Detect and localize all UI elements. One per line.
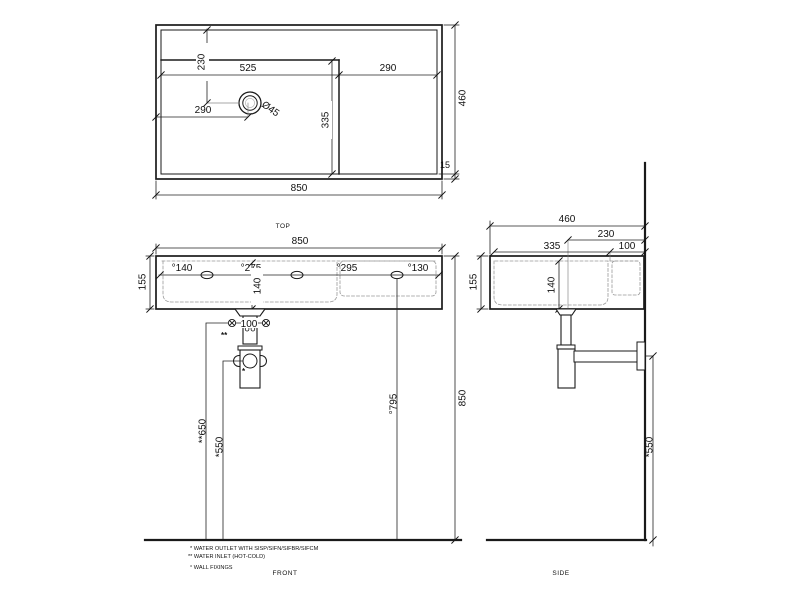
dim-230-lines [207,29,239,103]
dim-tap-hole-from-left: 290 [195,105,212,116]
side-view-label: SIDE [552,570,569,577]
inlet-mark: ** [221,331,228,340]
trap-cap [238,346,262,350]
dim-bowl-depth: 335 [321,111,332,128]
dim-side-overall-depth: 460 [559,214,576,225]
dim-rim-offset: 15 [440,160,450,170]
dim-drain-to-wall: 230 [598,229,615,240]
dim-overall-depth: 460 [458,89,469,106]
dim-front-height: 155 [138,273,149,290]
side-hidden-edges [494,261,640,305]
hidden-edges [162,261,436,302]
dim-front-overall-width: 850 [292,236,309,247]
dim-side-bowl-inner-height: 140 [547,276,558,293]
dim-overall-width: 850 [291,183,308,194]
dim-fixing-height: °795 [389,393,400,414]
dim-fixing-1: °140 [172,263,193,274]
dim-side-height: 155 [469,273,480,290]
dim-side-bowl-depth: 335 [544,241,561,252]
side-drain-and-trap [556,309,645,388]
basin-front-outline [156,256,442,309]
note-wall-fixings: ° WALL FIXINGS [190,565,233,571]
note-water-inlet: ** WATER INLET (HOT-COLD) [188,554,265,560]
dim-front-bowl-inner-height: 140 [253,277,264,294]
dim-outlet-height: *550 [215,436,226,457]
drawing-notes: * WATER OUTLET WITH SISP/SIFN/SIFBR/SIFC… [188,546,319,571]
tap-hole [239,92,261,114]
dim-tap-hole-from-back: 230 [197,53,208,70]
dim-fixing-4: °130 [408,263,429,274]
technical-drawing-sheet: 230 525 290 290 Ø45 335 460 15 [0,0,800,600]
dim-inlet-spacing: 100 [241,319,258,330]
dim-tap-hole-diameter: Ø45 [259,99,281,119]
top-view-label: TOP [276,223,291,230]
front-view: 850 °140 °275 °295 °130 155 140 [138,236,469,577]
side-dim-lines [490,221,645,314]
basin-side-outline [490,256,644,309]
side-view: 460 230 335 100 155 140 [469,163,657,577]
dim-side-outlet-height: *550 [645,436,656,457]
top-view: 230 525 290 290 Ø45 335 460 15 [153,22,469,230]
dim-inlet-height: **650 [198,418,209,443]
dim-fixing-3: °295 [337,263,358,274]
wall-outlet-pipe [574,351,637,362]
dim-back-shelf: 100 [619,241,636,252]
dim-deck-width: 290 [380,63,397,74]
wall-flange [637,342,645,370]
washbasin-dimension-drawing: 230 525 290 290 Ø45 335 460 15 [0,0,800,600]
dim-bowl-width: 525 [240,63,257,74]
front-view-label: FRONT [273,570,298,577]
height-leader-lines [206,256,459,540]
note-water-outlet: * WATER OUTLET WITH SISP/SIFN/SIFBR/SIFC… [190,546,319,552]
dim-front-overall-height: 850 [458,389,469,406]
